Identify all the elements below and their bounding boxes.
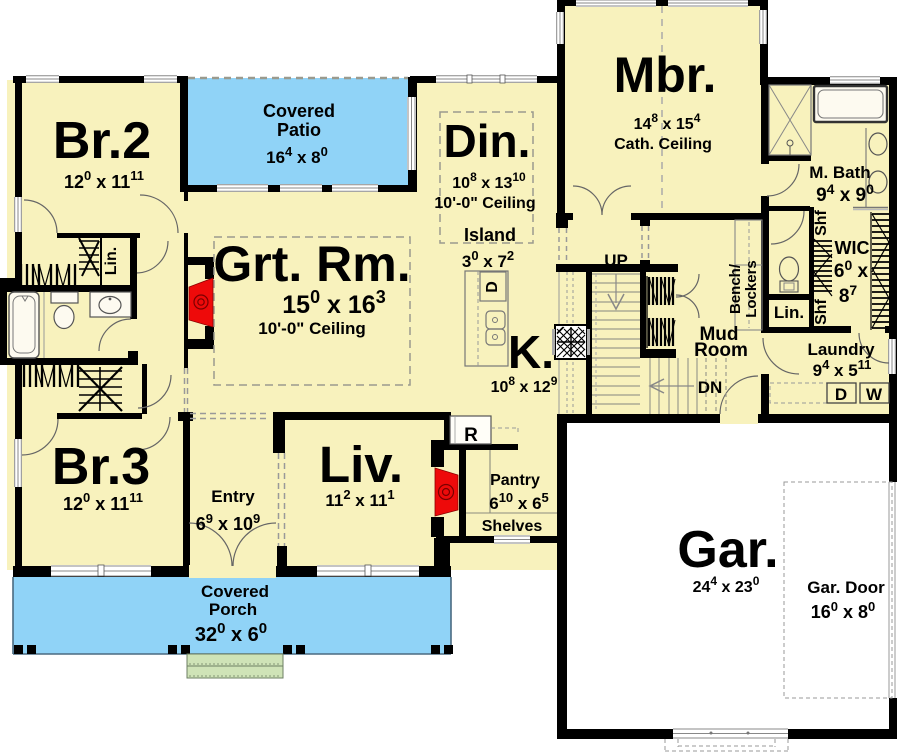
svg-text:WIC: WIC xyxy=(835,238,870,258)
svg-text:160 x 80: 160 x 80 xyxy=(811,599,876,622)
svg-text:D: D xyxy=(835,385,847,404)
svg-text:DN: DN xyxy=(698,378,723,397)
svg-text:10'-0" Ceiling: 10'-0" Ceiling xyxy=(434,195,535,212)
svg-text:W: W xyxy=(866,385,883,404)
svg-text:Br.2: Br.2 xyxy=(53,112,151,170)
svg-text:Shf: Shf xyxy=(813,298,830,324)
svg-text:30 x 72: 30 x 72 xyxy=(462,248,514,271)
svg-text:Gar. Door: Gar. Door xyxy=(807,578,885,597)
svg-text:164 x 80: 164 x 80 xyxy=(266,144,328,167)
svg-text:Liv.: Liv. xyxy=(319,436,403,493)
svg-text:10'-0" Ceiling: 10'-0" Ceiling xyxy=(258,319,366,338)
svg-text:Lin.: Lin. xyxy=(774,303,804,322)
svg-text:Island: Island xyxy=(464,225,516,245)
svg-text:Din.: Din. xyxy=(444,115,531,167)
svg-text:Shelves: Shelves xyxy=(482,518,543,535)
svg-text:K.: K. xyxy=(508,326,554,378)
svg-text:Entry: Entry xyxy=(211,487,255,506)
svg-text:UP: UP xyxy=(604,251,628,270)
svg-text:112 x 111: 112 x 111 xyxy=(325,487,394,510)
svg-text:Shf: Shf xyxy=(813,209,830,235)
svg-text:150 x 163: 150 x 163 xyxy=(282,287,385,319)
svg-text:M. Bath: M. Bath xyxy=(809,163,870,182)
svg-text:Br.3: Br.3 xyxy=(52,438,150,496)
svg-text:Cath. Ceiling: Cath. Ceiling xyxy=(614,136,712,153)
svg-text:320 x 60: 320 x 60 xyxy=(195,620,267,646)
svg-text:Lockers: Lockers xyxy=(743,260,760,318)
svg-text:Covered: Covered xyxy=(201,582,269,601)
svg-text:Grt. Rm.: Grt. Rm. xyxy=(213,236,410,292)
svg-text:Mbr.: Mbr. xyxy=(614,47,717,103)
svg-text:610 x 65: 610 x 65 xyxy=(489,490,549,513)
svg-text:Covered: Covered xyxy=(263,101,335,121)
svg-text:D: D xyxy=(484,281,501,293)
svg-text:Gar.: Gar. xyxy=(677,521,778,579)
svg-text:Room: Room xyxy=(694,340,748,361)
svg-text:94 x 90: 94 x 90 xyxy=(816,181,874,206)
svg-text:Porch: Porch xyxy=(209,600,257,619)
svg-text:R: R xyxy=(464,425,478,446)
svg-text:69 x 109: 69 x 109 xyxy=(196,511,261,534)
svg-text:Lin.: Lin. xyxy=(103,247,120,275)
svg-text:Bench/: Bench/ xyxy=(727,263,744,314)
svg-text:Patio: Patio xyxy=(277,120,321,140)
svg-text:Pantry: Pantry xyxy=(490,472,540,489)
